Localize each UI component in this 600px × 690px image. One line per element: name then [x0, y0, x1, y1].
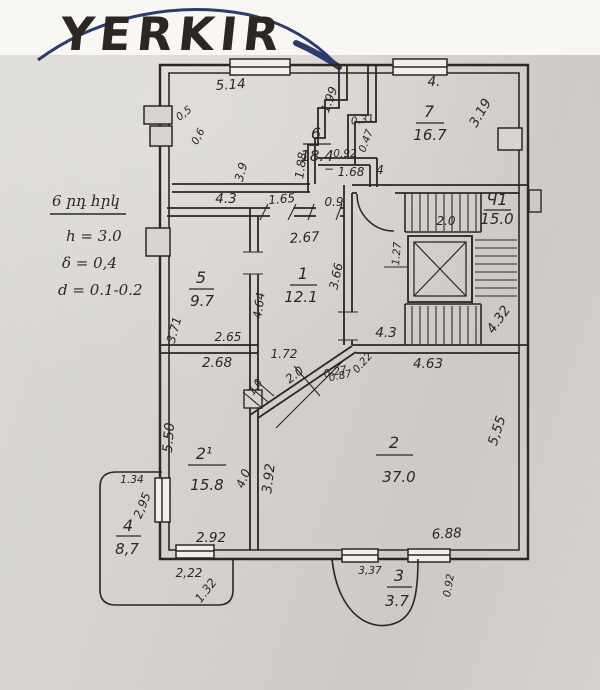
- stair-landing-number: Ч1: [486, 190, 507, 209]
- room1-area: 12.1: [284, 288, 317, 306]
- stair-lower-hatch: [412, 306, 476, 344]
- dim-p292: 2.92: [196, 530, 226, 546]
- dim-top6: 5.14: [215, 76, 246, 94]
- dim-d20: 2.0: [283, 363, 307, 386]
- dim-r5-265: 2.65: [215, 330, 242, 344]
- dim-r2-688: 6.88: [431, 525, 462, 543]
- wall-corridor-top: [167, 208, 344, 216]
- entry-door-arc: [357, 194, 394, 231]
- room6-number: 6: [311, 124, 321, 143]
- room2p-number: 2¹: [196, 444, 213, 463]
- room2-number: 2: [389, 433, 399, 452]
- stair-landing-area: 15.0: [480, 210, 513, 228]
- wall-room2-top: [352, 345, 528, 353]
- room5-number: 5: [196, 268, 206, 287]
- dim-n06: 0,6: [189, 126, 208, 147]
- wall-pier-right: [498, 128, 522, 150]
- margin-notes: 6 րդ հրկ h = 3.0 δ = 0,4 d = 0.1-0.2: [50, 192, 143, 299]
- wall-notch-left-upper: [144, 106, 172, 124]
- dim-b092: 0.92: [441, 573, 457, 598]
- room7-number: 7: [424, 102, 435, 121]
- dim-d172: 1.72: [271, 347, 298, 361]
- balcony4-number: 4: [123, 516, 133, 535]
- dim-c267: 2.67: [289, 229, 321, 247]
- dim-diag319: 3.19: [466, 96, 495, 130]
- stair-lower-frame: [405, 304, 481, 345]
- note-title: 6 րդ հրկ: [52, 192, 120, 210]
- elevator-cross: [414, 242, 466, 296]
- note-h: h = 3.0: [66, 227, 122, 245]
- dim-s20: 2.0: [436, 214, 455, 228]
- dim-p134: 1.34: [120, 474, 143, 486]
- room7-area: 16.7: [413, 126, 447, 144]
- dim-c165: 1.65: [268, 191, 296, 207]
- dim-v4: 4: [376, 163, 384, 177]
- dim-s463: 4.63: [413, 356, 443, 372]
- dim-s43: 4.3: [375, 325, 396, 341]
- dim-p295: 2,95: [131, 490, 154, 520]
- dim-c43: 4.3: [215, 191, 236, 207]
- dim-v092: 0.92: [333, 148, 357, 160]
- room5-area: 9.7: [190, 292, 214, 310]
- door-ticks-room5: [243, 252, 263, 274]
- balcony3-area: 3.7: [385, 592, 409, 610]
- balcony4-area: 8,7: [115, 540, 139, 558]
- dim-v031: 0.31: [350, 112, 375, 127]
- scanned-floor-plan-page: YERKIR: [0, 0, 600, 690]
- dim-r2-555: 5,55: [485, 414, 510, 448]
- wall-room5-bottom: [160, 345, 258, 353]
- stair-right-hatch: [475, 240, 517, 296]
- note-delta: δ = 0,4: [62, 254, 117, 272]
- dim-p392: 3.92: [259, 463, 279, 495]
- wall-stub-right: [529, 190, 541, 212]
- note-d: d = 0.1-0.2: [58, 281, 143, 299]
- balcony3-number: 3: [394, 566, 404, 585]
- dim-b337: 3,37: [358, 565, 382, 577]
- room2-area: 37.0: [382, 468, 415, 486]
- floor-plan-svg: YERKIR: [0, 0, 600, 690]
- dim-s432: 4.32: [484, 303, 514, 337]
- dim-c09: 0.9: [324, 195, 343, 209]
- door-marks: [243, 194, 408, 428]
- dim-b132: 1.32: [192, 576, 219, 606]
- room2p-area: 15.8: [190, 476, 223, 494]
- dim-top7: 4.: [428, 74, 441, 90]
- wall-room2p-right: [250, 415, 258, 550]
- dim-n05: 0,5: [174, 104, 195, 124]
- dim-v168: 1.68: [338, 165, 365, 179]
- dim-c464: 4.64: [250, 291, 268, 319]
- dim-b222: 2,22: [176, 566, 203, 580]
- dim-r5-371: 3.71: [164, 315, 184, 344]
- dim-v39: 3.9: [232, 161, 250, 183]
- door-ticks-corridor-right: [338, 312, 358, 340]
- dim-v047: 0.47: [357, 128, 376, 154]
- dim-p550: 5.50: [160, 422, 179, 453]
- dim-minus: −: [324, 162, 334, 176]
- room1-number: 1: [298, 264, 308, 283]
- wall-pier-room5: [146, 228, 170, 256]
- dim-p268: 2.68: [202, 355, 232, 371]
- wall-notch-left-lower: [150, 126, 172, 146]
- logo-wordmark: YERKIR: [57, 7, 288, 61]
- dim-s127: 1.27: [390, 241, 404, 266]
- dim-c366: 3.66: [326, 261, 345, 290]
